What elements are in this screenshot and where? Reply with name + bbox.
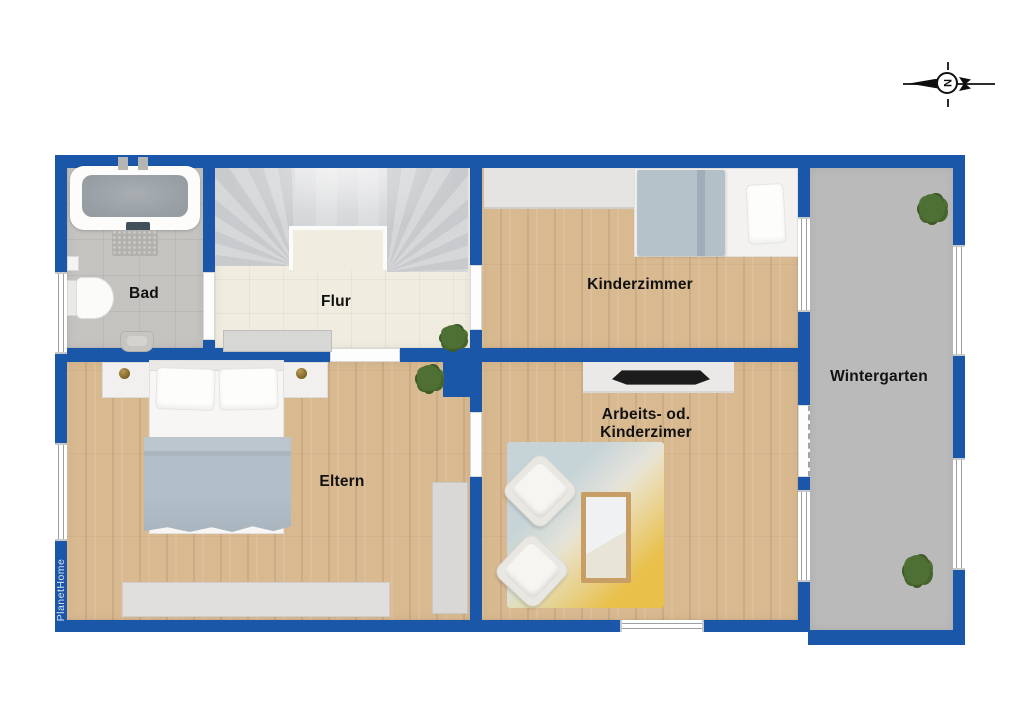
nightstand — [282, 362, 328, 398]
window — [55, 272, 67, 354]
room-label-flur: Flur — [321, 293, 351, 311]
hall-sideboard — [223, 330, 332, 352]
room-label-bad: Bad — [129, 285, 159, 303]
staircase-winder-right — [387, 168, 468, 272]
door-opening — [470, 412, 482, 477]
parent-bed-pillow — [218, 367, 278, 411]
wall-segment — [798, 477, 810, 490]
wall-segment — [470, 168, 482, 265]
sink — [120, 331, 154, 352]
door-opening — [330, 348, 400, 362]
floor-plan: Bad Flur Kinderzimmer Wintergarten Elter… — [0, 0, 1024, 725]
dresser — [122, 582, 390, 617]
kinder-bed-pillow — [745, 183, 786, 245]
bedside-lamp — [296, 368, 307, 379]
wall-segment — [798, 578, 810, 620]
door-opening — [203, 272, 215, 340]
staircase-winder-left — [215, 168, 295, 266]
compass-letter: N — [941, 74, 953, 92]
door-opening — [798, 405, 810, 477]
wardrobe — [484, 168, 634, 209]
room-label-kinderzimmer: Kinderzimmer — [587, 276, 693, 294]
room-label-wintergarten: Wintergarten — [830, 368, 928, 386]
parent-bed — [149, 360, 284, 534]
compass-tick — [947, 62, 949, 70]
staircase-middle — [295, 168, 387, 232]
room-label-arbeitszimmer: Arbeits- od. Kinderzimer — [600, 406, 692, 442]
door-opening — [470, 265, 482, 330]
bedside-lamp — [119, 368, 130, 379]
wall-segment — [470, 330, 482, 412]
bath-mat — [112, 230, 158, 256]
bathtub-faucet — [138, 157, 148, 170]
stair-landing — [289, 226, 387, 270]
wall-pillar — [443, 362, 470, 397]
kinder-bed — [634, 168, 798, 257]
plant-icon — [436, 320, 470, 354]
plant-icon — [898, 548, 936, 592]
window — [953, 458, 965, 570]
wall-segment — [953, 155, 965, 645]
bathtub-faucet — [118, 157, 128, 170]
sink-basin — [127, 336, 147, 346]
window — [798, 490, 810, 582]
plant-icon — [914, 188, 950, 228]
bathtub — [70, 166, 200, 230]
compass-north-icon: N — [903, 62, 995, 108]
parent-bed-pillow — [155, 367, 215, 411]
wall-segment — [203, 168, 215, 272]
kinder-bed-blanket — [637, 170, 725, 256]
bathtub-basin — [82, 175, 188, 217]
wall-segment — [482, 348, 798, 362]
room-label-arbeitszimmer-line2: Kinderzimer — [600, 424, 692, 442]
compass-arrow — [909, 79, 938, 89]
window — [620, 620, 704, 632]
window — [55, 443, 67, 541]
wall-segment — [470, 477, 482, 620]
compass-tick — [947, 99, 949, 107]
wall-segment — [798, 168, 810, 217]
plant-icon — [412, 360, 446, 396]
wall-segment — [808, 630, 965, 645]
wall-cabinet — [67, 256, 79, 271]
window — [798, 217, 810, 312]
wall-segment — [798, 308, 810, 405]
compass-circle: N — [936, 72, 958, 94]
coffee-table — [581, 492, 631, 583]
parent-bed-blanket — [144, 437, 291, 533]
window — [953, 245, 965, 356]
tv — [612, 369, 710, 386]
wall-segment — [55, 155, 965, 168]
wardrobe — [432, 482, 468, 614]
room-label-arbeitszimmer-line1: Arbeits- od. — [600, 406, 692, 424]
watermark: PlanetHome — [55, 559, 67, 622]
room-label-eltern: Eltern — [319, 473, 364, 491]
